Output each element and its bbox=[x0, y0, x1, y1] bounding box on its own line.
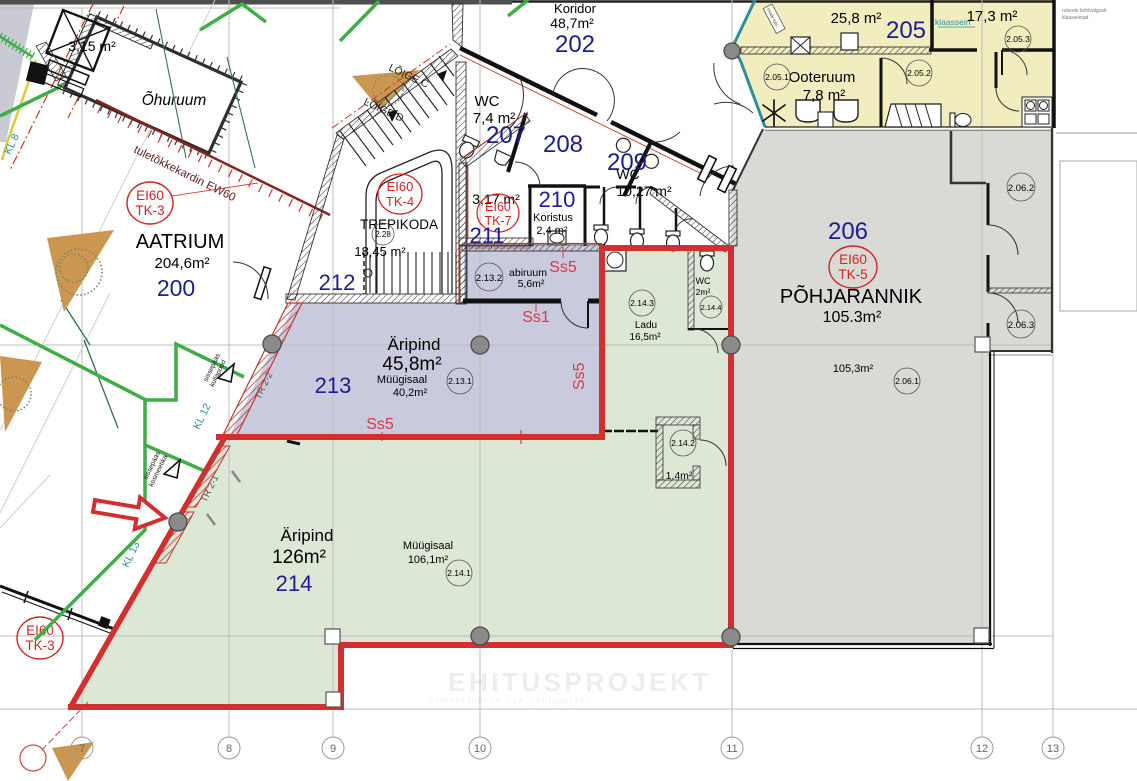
svg-text:208: 208 bbox=[543, 131, 583, 158]
svg-text:2.14.4: 2.14.4 bbox=[701, 303, 722, 312]
svg-text:18,45 m²: 18,45 m² bbox=[354, 244, 406, 259]
svg-text:212: 212 bbox=[319, 270, 356, 295]
svg-text:WC: WC bbox=[475, 93, 500, 110]
svg-text:10: 10 bbox=[474, 743, 486, 755]
svg-text:2.14.2: 2.14.2 bbox=[671, 438, 695, 448]
svg-text:202: 202 bbox=[555, 31, 595, 58]
svg-text:2.14.3: 2.14.3 bbox=[630, 298, 654, 308]
svg-text:16,5m²: 16,5m² bbox=[629, 332, 661, 343]
svg-text:klaassein: klaassein bbox=[935, 17, 971, 27]
svg-text:Koristus: Koristus bbox=[533, 212, 573, 224]
svg-text:2,4 m²: 2,4 m² bbox=[536, 225, 568, 237]
svg-text:200: 200 bbox=[157, 275, 195, 301]
svg-text:EI60: EI60 bbox=[136, 188, 164, 203]
svg-text:25,8 m²: 25,8 m² bbox=[831, 10, 882, 27]
svg-text:TREPIKODA: TREPIKODA bbox=[360, 217, 438, 232]
svg-text:2.06.3: 2.06.3 bbox=[1008, 320, 1034, 331]
svg-text:9: 9 bbox=[330, 743, 336, 755]
svg-text:2.06.2: 2.06.2 bbox=[1008, 183, 1034, 194]
svg-text:TK-4: TK-4 bbox=[386, 194, 414, 209]
svg-text:205: 205 bbox=[886, 17, 926, 44]
svg-text:8: 8 bbox=[226, 743, 232, 755]
svg-text:214: 214 bbox=[276, 571, 313, 596]
svg-text:2.14.1: 2.14.1 bbox=[447, 568, 471, 578]
svg-text:TK-5: TK-5 bbox=[838, 267, 867, 282]
svg-text:211: 211 bbox=[469, 223, 504, 248]
svg-text:Ooteruum: Ooteruum bbox=[789, 69, 856, 86]
svg-text:2.13.2: 2.13.2 bbox=[476, 273, 502, 284]
svg-text:klaasseinad: klaasseinad bbox=[1062, 15, 1089, 21]
svg-text:105,3m²: 105,3m² bbox=[833, 363, 874, 375]
svg-text:TK-3: TK-3 bbox=[135, 203, 164, 218]
svg-text:2.05.1: 2.05.1 bbox=[765, 72, 789, 82]
svg-text:EI60: EI60 bbox=[387, 179, 414, 194]
svg-text:EHITUSPROJEKT: EHITUSPROJEKT bbox=[448, 667, 712, 697]
svg-text:48,7m²: 48,7m² bbox=[550, 15, 594, 31]
svg-text:TK-3: TK-3 bbox=[25, 638, 54, 653]
svg-text:210: 210 bbox=[539, 187, 576, 212]
svg-text:Ss5: Ss5 bbox=[549, 259, 577, 276]
svg-text:WC: WC bbox=[616, 166, 639, 182]
svg-text:2.05.3: 2.05.3 bbox=[1006, 34, 1030, 44]
svg-text:45,8m²: 45,8m² bbox=[382, 354, 441, 375]
svg-text:Ss5: Ss5 bbox=[366, 416, 394, 433]
svg-text:126m²: 126m² bbox=[272, 547, 326, 568]
svg-text:106,1m²: 106,1m² bbox=[408, 554, 449, 566]
svg-text:Äripind: Äripind bbox=[388, 335, 441, 354]
svg-text:Koridor: Koridor bbox=[554, 1, 597, 16]
svg-text:13: 13 bbox=[1047, 743, 1059, 755]
svg-text:2m²: 2m² bbox=[696, 287, 711, 297]
svg-text:WC: WC bbox=[696, 276, 711, 286]
svg-text:Ss5: Ss5 bbox=[571, 362, 588, 390]
svg-text:12: 12 bbox=[976, 743, 988, 755]
svg-text:Müügisaal: Müügisaal bbox=[377, 374, 427, 386]
svg-text:7: 7 bbox=[79, 743, 85, 755]
svg-text:11: 11 bbox=[726, 743, 737, 755]
svg-text:EI60: EI60 bbox=[839, 252, 867, 267]
svg-text:7,8 m²: 7,8 m² bbox=[803, 87, 846, 104]
svg-text:207: 207 bbox=[486, 122, 526, 149]
svg-text:3,15 m²: 3,15 m² bbox=[68, 38, 116, 54]
svg-text:AATRIUM: AATRIUM bbox=[136, 231, 225, 253]
svg-text:Ladu: Ladu bbox=[635, 320, 657, 331]
svg-text:Müügisaal: Müügisaal bbox=[403, 540, 453, 552]
svg-text:1,4m²: 1,4m² bbox=[666, 470, 693, 482]
svg-text:10,27 m²: 10,27 m² bbox=[616, 183, 672, 199]
svg-text:105.3m²: 105.3m² bbox=[823, 309, 882, 326]
svg-text:5,6m²: 5,6m² bbox=[518, 278, 545, 290]
svg-text:2.28: 2.28 bbox=[375, 230, 391, 239]
svg-text:213: 213 bbox=[315, 373, 352, 398]
svg-text:2.06.1: 2.06.1 bbox=[895, 376, 919, 386]
svg-text:Äripind: Äripind bbox=[281, 526, 334, 545]
svg-text:206: 206 bbox=[828, 218, 868, 245]
svg-text:ruloode kohtvalgusti: ruloode kohtvalgusti bbox=[1062, 8, 1106, 14]
svg-text:2.05.2: 2.05.2 bbox=[907, 68, 931, 78]
svg-text:arhitektuurne osa pohiprojekt: arhitektuurne osa pohiprojekt bbox=[429, 696, 590, 705]
svg-text:2.13.1: 2.13.1 bbox=[448, 376, 472, 386]
svg-text:204,6m²: 204,6m² bbox=[154, 255, 209, 272]
svg-text:17,3 m²: 17,3 m² bbox=[967, 8, 1018, 25]
svg-text:40,2m²: 40,2m² bbox=[393, 387, 428, 399]
svg-text:PÕHJARANNIK: PÕHJARANNIK bbox=[780, 284, 923, 308]
svg-text:EI60: EI60 bbox=[485, 200, 511, 214]
